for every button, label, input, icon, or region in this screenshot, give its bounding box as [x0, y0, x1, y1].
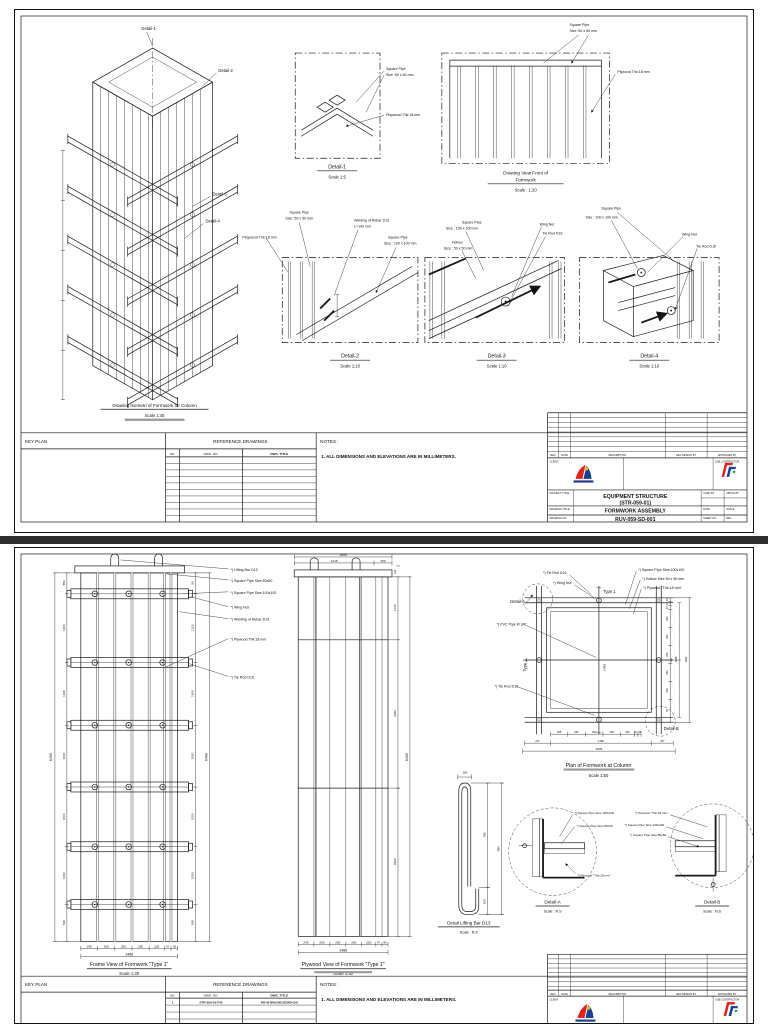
- key-plan-label: KEY PLAN: [25, 439, 47, 444]
- label: *) Square Pipe Size:50x50: [576, 824, 612, 828]
- label: Square Pipe: [289, 210, 309, 214]
- detail-title: Detail-3: [488, 354, 506, 360]
- sheet-no-label: SHEET NO: [703, 516, 716, 520]
- dim-label: 1000: [62, 752, 66, 759]
- label: Size :50 x 50 mm: [569, 29, 597, 33]
- dim-label: 50: [665, 708, 669, 711]
- label: Size : 50 x 50 mm: [444, 246, 473, 250]
- detail-a-view: *) Square Pipe Size:100x100 *) Square Pi…: [509, 808, 615, 914]
- frame-right-dims: 90 1100 1000 1000 1000 1000 500 6400: [178, 573, 212, 941]
- frame-view: 550 1200 1000 1000 1000 1000 500 6400 90…: [49, 554, 212, 976]
- detail-title: Detail-2: [341, 354, 359, 360]
- label: *) Square Pipe Size:50x50: [230, 579, 272, 583]
- dim-label: 245: [87, 944, 92, 948]
- col-dwg-title: DWG. TITLE: [270, 994, 288, 998]
- label: *) Tie Rod D16: [495, 684, 518, 688]
- iso-callout: Detail-4: [205, 218, 220, 223]
- view-caption: Plan of Formwork at Column: [566, 763, 632, 769]
- dim-label: 2640: [393, 858, 397, 865]
- reference-drawings-label: REFERENCE DRAWINGS: [213, 439, 267, 444]
- frame-labels: *) Lifting Bar D13 *) Square Pipe Size:5…: [121, 560, 277, 680]
- description-col: DESCRIPTION: [609, 453, 627, 457]
- detail2-view: Square Pipe Size :50 x 50 mm Playwood Th…: [242, 210, 418, 368]
- date-label: DATE: [703, 507, 710, 511]
- detail1-view: Square Pipe Size :50 x 50 mm Playwood Th…: [295, 53, 420, 179]
- label: *) Plywood "Thk:18 mm": [643, 586, 682, 590]
- dim-label: 220: [154, 944, 159, 948]
- label: *) Plywood "Thk:18 mm": [577, 874, 610, 878]
- dim-total: 980: [497, 846, 501, 851]
- ref-row-dwg-no: STR-059-01-F03: [199, 1001, 222, 1005]
- sheet-formwork-assembly: Detail-1 Detail-2 Detail-3 Detail-4 Draw…: [14, 9, 754, 533]
- detail-title: Detail-A: [544, 900, 561, 905]
- drawing-no-label: DRAWING NO: [550, 516, 567, 520]
- client-label: CLIENT: [550, 459, 560, 463]
- dim-label: 1100: [191, 624, 195, 631]
- dim-total: 1962: [684, 656, 688, 662]
- frame-left-dims: 550 1200 1000 1000 1000 1000 500 6400: [49, 573, 81, 941]
- detail3-view: Square Pipe Size : 100 x 100 mm Hollow S…: [425, 220, 565, 368]
- project-title-label: PROJECT TITLE: [550, 491, 570, 495]
- label: Playwood Thk:18 mm: [386, 113, 420, 117]
- label: L=100 mm: [354, 224, 371, 228]
- label: *) Plywood Thk:18 mm: [230, 638, 266, 642]
- dim-label: 245: [557, 730, 562, 734]
- dim-label: 96: [384, 940, 387, 944]
- detail-title: Detail Lifting Bar D13: [447, 920, 491, 925]
- rev-label: REV: [726, 516, 732, 520]
- dim-label: 23: [665, 606, 669, 609]
- dim-label: 250: [665, 688, 669, 693]
- date-col: DATE: [561, 992, 568, 996]
- label: *) Hollow Size 50 x 50 mm: [642, 577, 684, 581]
- plywood-bottom-dims: 245 250 250 250 220 97 96 1488: [298, 940, 388, 954]
- client-label: CLIENT: [550, 998, 560, 1002]
- label: *) PVC Pipe Ø 3/4": [497, 623, 528, 627]
- reference-drawings-label: REFERENCE DRAWINGS: [213, 982, 268, 987]
- label: Square Pipe: [462, 220, 482, 224]
- detail-title: Detail-4: [640, 354, 658, 360]
- view-scale: Scale : 1:20: [515, 187, 538, 192]
- detail-scale: Scale : N.S: [544, 909, 563, 913]
- dim-total: 6400: [405, 753, 409, 761]
- ref-row-dwg-title: P06 46 BRACING DESIGN (24): [261, 1001, 298, 1005]
- contractor-logo: [722, 463, 738, 477]
- detail-scale: Scale : N.S: [703, 909, 722, 913]
- dim-label: 1225: [331, 559, 338, 563]
- sheet-formwork-views: 550 1200 1000 1000 1000 1000 500 6400 90…: [14, 547, 754, 1024]
- iso-scale: Scale 1:40: [145, 413, 165, 418]
- contractor-label: SUB CONTRACTOR: [715, 998, 739, 1002]
- label: Playwood Thk:18 mm: [242, 235, 276, 239]
- drawing-number: RUV-059-SD-001: [615, 517, 655, 523]
- dim-label: 1200: [62, 624, 66, 631]
- label: *) Lifting Bar D13: [230, 568, 257, 572]
- dim-label: 202: [625, 730, 630, 734]
- note-1: 1. ALL DIMENSIONS AND ELEVATIONS ARE IN …: [321, 997, 456, 1002]
- detail-scale: Scale : N.S: [460, 930, 479, 934]
- view-caption: Plywood View of Formwork "Type 1": [302, 962, 385, 968]
- contractor-label: SUB CONTRACTOR: [715, 459, 739, 463]
- dim-label: 97: [166, 944, 169, 948]
- label: *) Tie Rod D16: [543, 571, 566, 575]
- dim-label: 250: [351, 940, 356, 944]
- dim-label: 500: [62, 920, 66, 925]
- plan-view: *) Tie Rod D16 *) Wing Nut Type 1 *) Squ…: [495, 568, 691, 778]
- client-logo: [575, 1004, 595, 1022]
- view-caption: Drawing View Front of: [503, 170, 549, 175]
- col-dwg-no: DWG. NO.: [204, 452, 219, 456]
- dim-label: 90: [191, 581, 195, 585]
- dim-label: 200: [483, 899, 487, 904]
- frame-walers: [67, 589, 193, 910]
- page-gap: [0, 536, 768, 544]
- dim-total: 6400: [204, 753, 208, 761]
- project-title-2: (STR-059-01): [619, 500, 651, 506]
- label: Size : 100 x 100 mm: [384, 241, 417, 245]
- client-logo: [573, 465, 593, 483]
- note-1: 1. ALL DIMENSIONS AND ELEVATIONS ARE IN …: [321, 454, 456, 459]
- dim-label: 1488: [598, 739, 604, 743]
- dim-label: 23: [665, 602, 669, 605]
- detail-b-view: *) Plywood "Thk:18 mm" *) Square Pipe Si…: [625, 804, 753, 914]
- approved-by-col: APPROVED BY: [718, 453, 737, 457]
- view-scale: Scale 1:30: [119, 971, 139, 976]
- detail4-view: Square Pipe Size : 100 x 100 mm Wing Nut…: [579, 206, 719, 368]
- col-dwg-title: DWG. TITLE: [270, 452, 288, 456]
- dim-total: 2005: [595, 747, 602, 751]
- dim-label: 1000: [191, 752, 195, 759]
- description-col: DESCRIPTION: [609, 992, 627, 996]
- ref-row-no: 1: [172, 1001, 174, 1005]
- front-view: Square Pipe Size :50 x 50 mm Plywood Thk…: [442, 23, 650, 192]
- dim-label: 250: [138, 944, 143, 948]
- dim-label: 237: [660, 739, 665, 743]
- dim-label: 250: [610, 730, 615, 734]
- label: Square Pipe: [388, 235, 408, 239]
- col-no: NO.: [170, 994, 176, 998]
- bottom-strip: KEY PLAN REFERENCE DRAWINGS NO. DWG. NO.…: [21, 976, 747, 1023]
- dim-label: 50: [665, 598, 669, 601]
- dim-label: 245: [303, 940, 308, 944]
- label: Size : 100 x 100 mm: [585, 215, 618, 219]
- iso-callout: Detail-3: [212, 191, 227, 196]
- key-plan-label: KEY PLAN: [25, 982, 47, 987]
- dim-label: 100: [462, 771, 467, 775]
- label: Hollow: [452, 240, 463, 244]
- label: Welding of Rebar D13: [354, 218, 389, 222]
- chkd-by-label: CHKD BY: [703, 491, 715, 495]
- label: *) Square Pipe Size:100x100: [625, 823, 665, 827]
- detail-scale: Scale 1:10: [340, 364, 360, 369]
- dim-label: 780: [483, 832, 487, 837]
- label: *) Plywood "Thk:18 mm": [635, 811, 668, 815]
- date-col: DATE: [561, 453, 568, 457]
- lifting-bar-detail: 100 780 200 980 Detail Lifting Bar D13 S…: [438, 771, 504, 935]
- inner-border: [21, 16, 747, 522]
- drawing-title: FORMWORK ASSEMBLY: [605, 508, 667, 514]
- rev-col: REV: [550, 453, 556, 457]
- dim-label: 250: [592, 730, 597, 734]
- detail-scale: Scale 1:10: [487, 364, 507, 369]
- dim-total: 1488: [674, 656, 678, 662]
- label: Plywood Thk:18 mm: [617, 70, 649, 74]
- view-caption: Formwork: [515, 177, 536, 182]
- dim-label: 550: [62, 580, 66, 585]
- frame-bottom-dims: 245 250 250 250 220 97 96 1488: [81, 944, 178, 958]
- frame-joints: [97, 573, 172, 941]
- label: Size : 100 x 100 mm: [446, 226, 479, 230]
- dim-label: 250: [574, 730, 579, 734]
- iso-callout: Detail-2: [218, 68, 233, 73]
- title-block: REV DATE DESCRIPTION REV DESIGN BY APPRO…: [548, 413, 747, 523]
- label: Square Pipe: [386, 67, 406, 71]
- label: Size :50 x 50 mm: [386, 73, 414, 77]
- dim-label: 140: [393, 569, 397, 574]
- label: Square Pipe: [569, 23, 589, 27]
- dim-label: 237: [535, 739, 540, 743]
- dim-label: 220: [366, 940, 371, 944]
- rev-design-by-col: REV DESIGN BY: [676, 453, 696, 457]
- rev-design-by-col: REV DESIGN BY: [676, 992, 696, 996]
- col-dwg-no: DWG. NO.: [204, 994, 219, 998]
- iso-view: Detail-1 Detail-2 Detail-3 Detail-4 Draw…: [61, 26, 238, 420]
- label: *) Tie Rod D16: [230, 675, 253, 679]
- rev-col: REV: [550, 992, 556, 996]
- dim-label: 2640: [393, 710, 397, 717]
- label: *) Square Pipe Size:100x100: [638, 568, 684, 572]
- label: *) Square Pipe Size:50x50: [630, 833, 666, 837]
- dim-label: 250: [121, 944, 126, 948]
- title-block: REV DATE DESCRIPTION REV DESIGN BY APPRO…: [548, 954, 747, 1023]
- approved-by-col: APPROVED BY: [718, 992, 737, 996]
- label: Wing Nut: [540, 222, 555, 226]
- detail-callout: Detail-A: [510, 599, 525, 604]
- appvd-by-label: APPVD BY: [726, 491, 739, 495]
- dim-label: 96: [173, 944, 176, 948]
- dim-total: 6400: [49, 753, 53, 761]
- label: Wing Nut: [682, 232, 697, 236]
- plywood-view: 1500 1225 250 140 1120 2640 2640 6400 24…: [294, 553, 412, 976]
- label: Size :50 x 50 mm: [285, 216, 313, 220]
- dim-label: 250: [665, 616, 669, 621]
- dim-label: 250: [665, 670, 669, 675]
- label: *) Welding of Rebar D13: [230, 618, 269, 622]
- dim-label: 1120: [393, 604, 397, 611]
- dim-total: 1488: [125, 952, 133, 956]
- dim-label: 1000: [62, 813, 66, 820]
- drawing-title-label: DRAWING TITLE: [550, 507, 570, 511]
- label: *) Square Pipe Size:100x100: [574, 811, 614, 815]
- detail-scale: Scale 1:10: [639, 364, 659, 369]
- dim-total: 1488: [339, 948, 347, 952]
- dim-label: 1000: [62, 872, 66, 879]
- dim-label: 1000: [191, 813, 195, 820]
- iso-callout: Detail-1: [141, 26, 156, 31]
- view-scale: Scale 1:50: [589, 773, 609, 778]
- dim-label: 500: [191, 920, 195, 925]
- dim-label: 1488: [602, 664, 606, 671]
- notes-label: NOTES :: [320, 982, 338, 987]
- view-caption: Frame View of Formwork "Type 1": [90, 962, 169, 968]
- label: *) Wing Nut: [230, 606, 248, 610]
- label: *) Square Pipe Size:100x100: [230, 591, 276, 595]
- iso-caption: Drawing Isometri of Formwork for Column: [112, 403, 197, 408]
- label: Tie Rod D16: [696, 244, 716, 248]
- label: Square Pipe: [602, 206, 622, 210]
- dim-label: 250: [665, 634, 669, 639]
- dim-label: 1000: [191, 872, 195, 879]
- detail-title: Detail-B: [704, 900, 720, 905]
- scale-label: SCALE: [726, 507, 735, 511]
- dim-label: 97: [377, 940, 380, 944]
- dim-total: 1500: [339, 553, 347, 557]
- contractor-logo: [724, 1002, 740, 1016]
- dim-label: 250: [319, 940, 324, 944]
- dim-label: 250: [335, 940, 340, 944]
- type-label: Type 2: [523, 659, 528, 672]
- label: *) Wing Nut: [553, 581, 571, 585]
- detail-title: Detail-1: [328, 164, 346, 170]
- dim-label: 45: [634, 730, 637, 734]
- plywood-right-dims: 1120 2640 2640 6400: [388, 577, 412, 936]
- dim-label: 250: [665, 652, 669, 657]
- label: Tie Rod D16: [543, 231, 563, 235]
- col-no: NO.: [170, 452, 176, 456]
- detail-scale: Scale 1:5: [328, 174, 346, 179]
- dim-label: 250: [380, 559, 385, 563]
- project-title-1: EQUIPMENT STRUCTURE: [603, 494, 668, 500]
- plan-right-dims: 50 23 23 250 250 250 250 250 50 1488 196…: [663, 598, 691, 722]
- notes-label: NOTES :: [320, 439, 338, 444]
- detail-callout: Detail-B: [664, 726, 679, 731]
- dim-label: 1000: [191, 690, 195, 697]
- dim-label: 1000: [62, 690, 66, 697]
- dim-label: 250: [104, 944, 109, 948]
- type-label: Type 1: [603, 589, 616, 594]
